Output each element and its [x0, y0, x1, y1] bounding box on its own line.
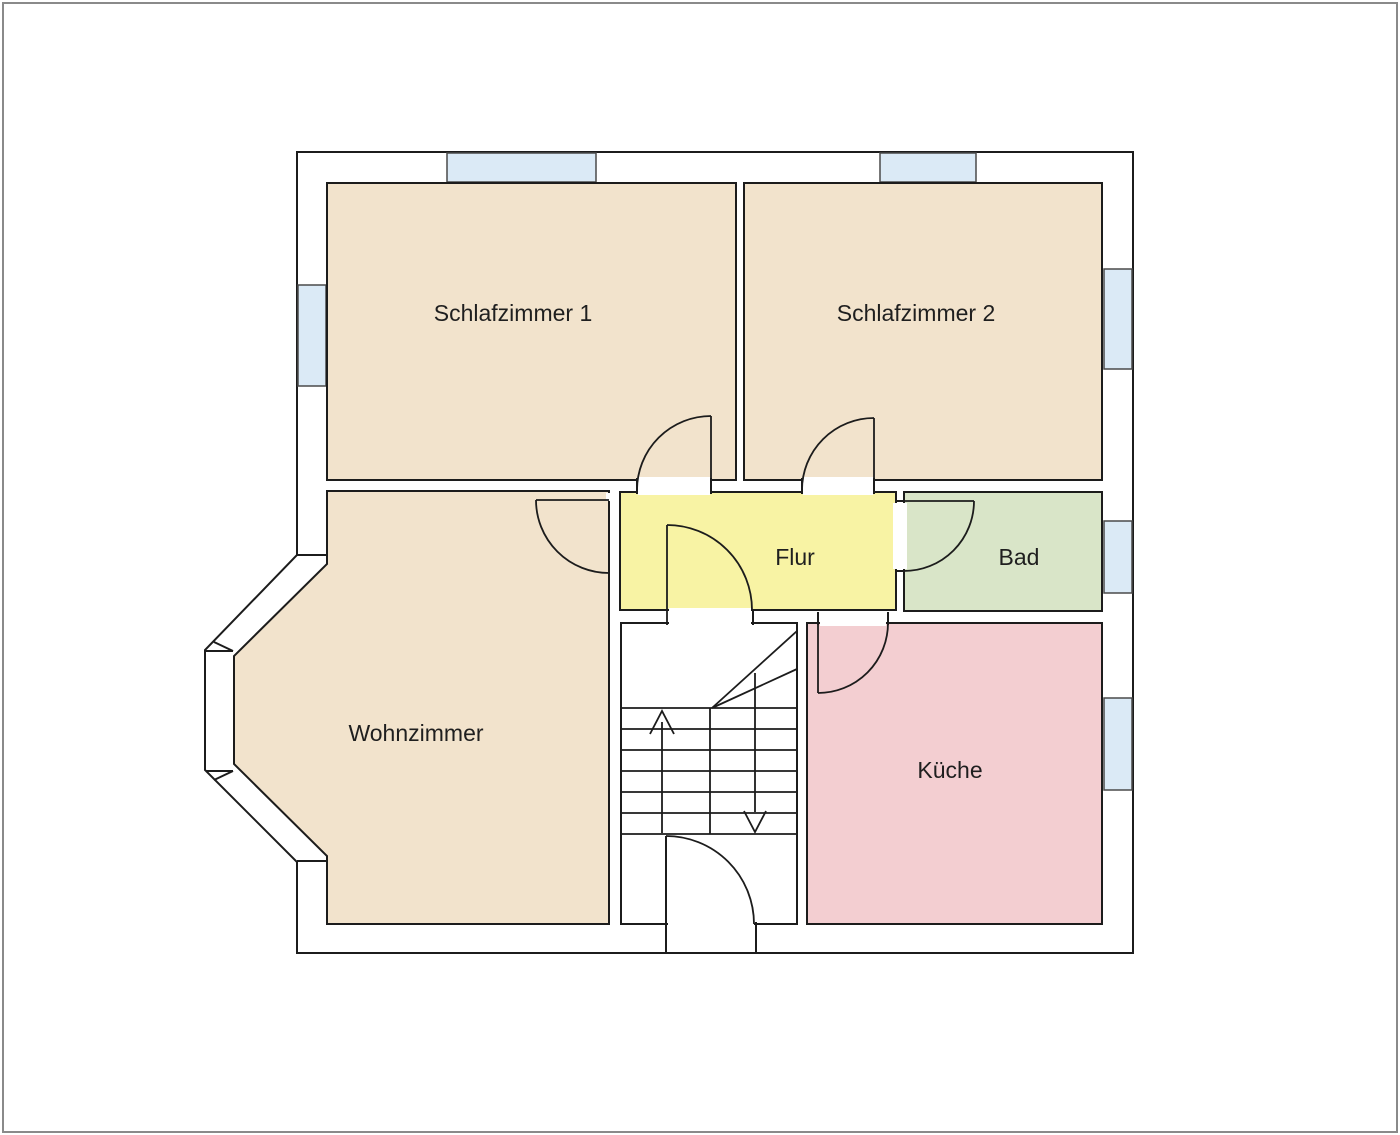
window-top-right-icon: [880, 153, 976, 182]
window-top-left-icon: [447, 153, 596, 182]
room-flur: [620, 492, 896, 610]
label-flur: Flur: [775, 544, 815, 570]
label-wohnzimmer: Wohnzimmer: [348, 720, 483, 746]
window-right-middle-icon: [1104, 521, 1132, 593]
label-schlafzimmer-1: Schlafzimmer 1: [434, 300, 592, 326]
room-treppenhaus: [621, 623, 797, 924]
room-schlafzimmer-2: [744, 183, 1102, 480]
window-left-icon: [298, 285, 326, 386]
floor-plan-canvas: Schlafzimmer 1 Schlafzimmer 2 Flur Bad W…: [0, 0, 1400, 1135]
room-schlafzimmer-1: [327, 183, 736, 480]
window-right-bottom-icon: [1104, 698, 1132, 790]
floor-plan-page: Schlafzimmer 1 Schlafzimmer 2 Flur Bad W…: [0, 0, 1400, 1135]
label-bad: Bad: [999, 544, 1040, 570]
room-wohnzimmer: [234, 491, 609, 924]
label-schlafzimmer-2: Schlafzimmer 2: [837, 300, 995, 326]
window-right-top-icon: [1104, 269, 1132, 369]
label-kueche: Küche: [917, 757, 982, 783]
